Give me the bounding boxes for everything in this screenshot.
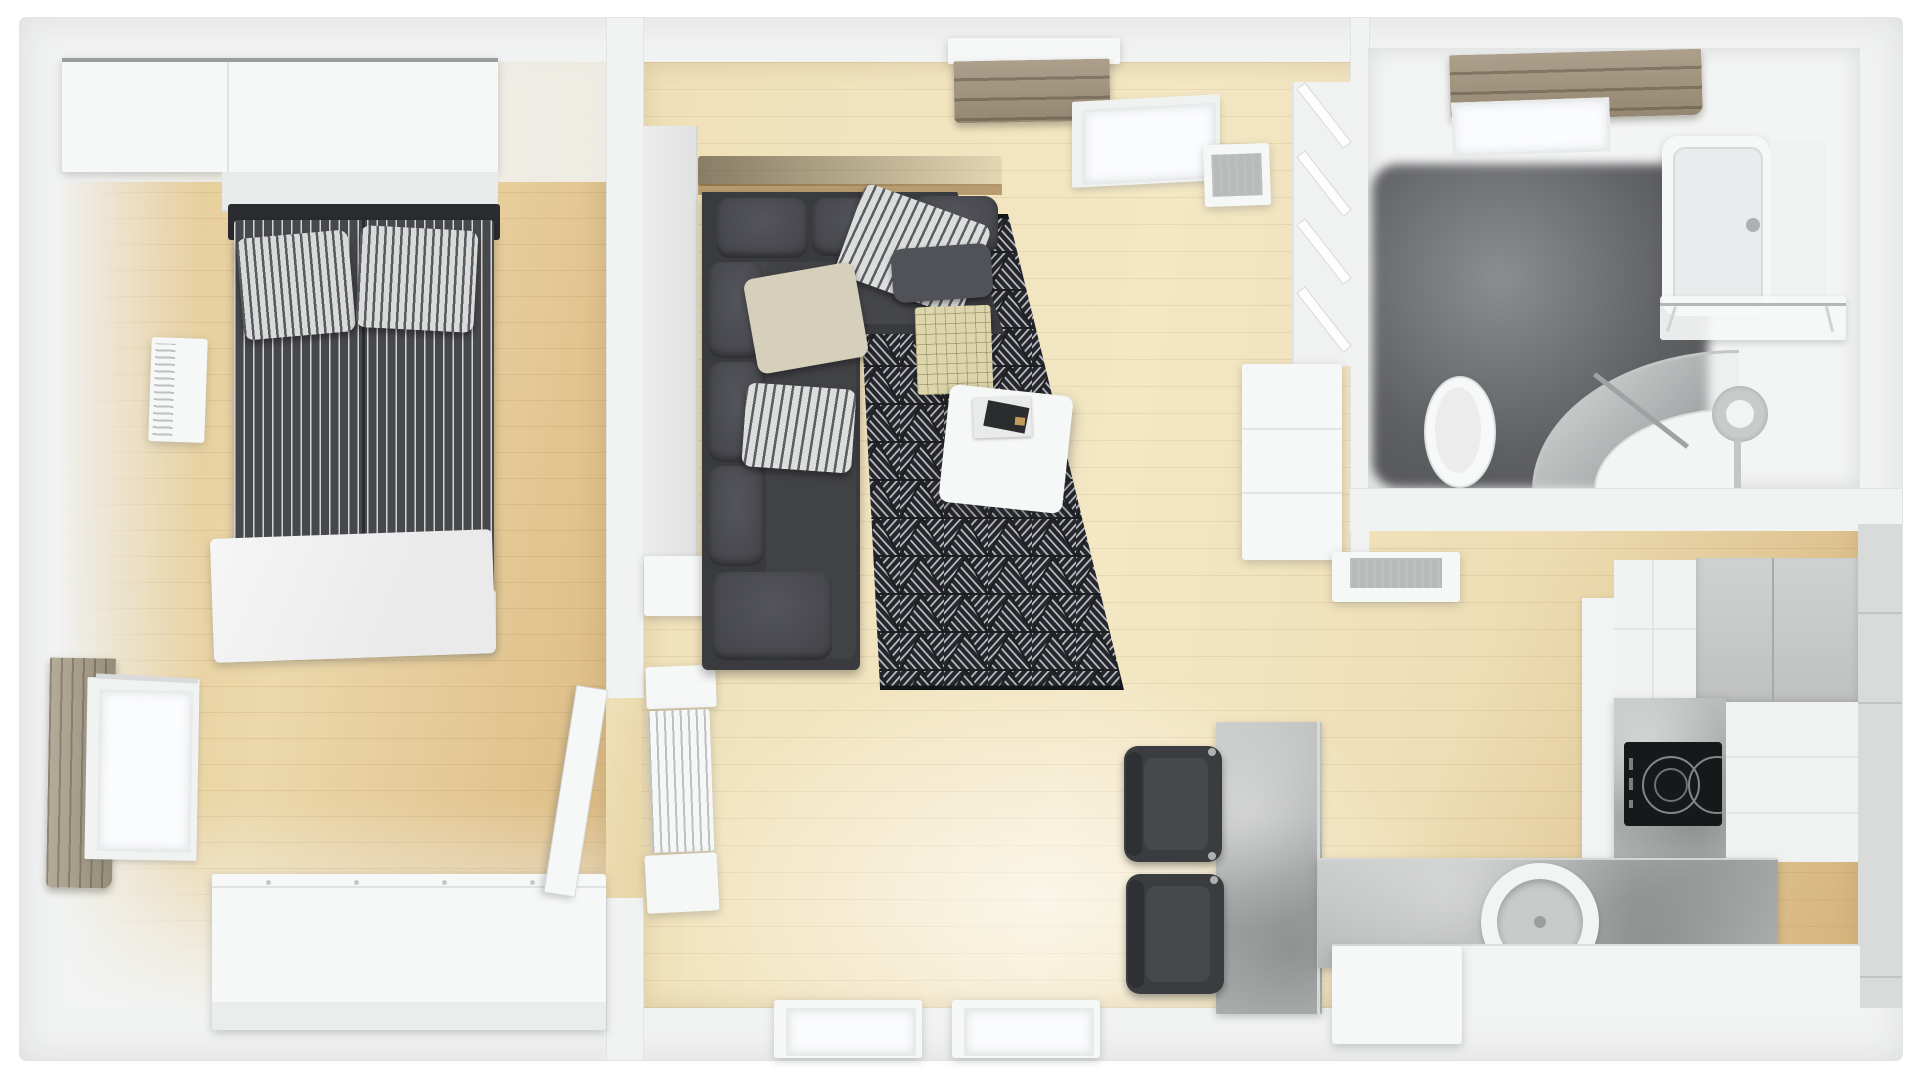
- shelf-slat: [1296, 82, 1351, 149]
- cooktop-controls: [1629, 778, 1633, 790]
- sofa-back-cushion: [716, 198, 808, 258]
- kitchen-white-run: [1582, 598, 1618, 862]
- wardrobe-top-gap: [62, 58, 498, 62]
- window-sill-radiator: [1203, 143, 1271, 207]
- cooktop-controls: [1629, 800, 1633, 808]
- cooktop-controls: [1629, 758, 1633, 770]
- wardrobe-seam: [227, 62, 229, 172]
- kitchen-white-tiles: [1614, 560, 1698, 700]
- bedroom-doorway-floor: [606, 698, 642, 898]
- bed-throw-blanket: [210, 529, 496, 663]
- tile-seam: [1652, 560, 1654, 700]
- sofa-pillow-dark: [890, 243, 994, 304]
- toilet-seat: [1435, 387, 1481, 473]
- bathroom-side-ledge: [1770, 142, 1826, 316]
- sideboard-seam: [1242, 428, 1342, 430]
- bathroom-skylight-window: [1451, 97, 1611, 156]
- toilet-paper-holder-icon: [1712, 386, 1768, 442]
- bedroom-wall-shelf-radiator: [148, 337, 208, 443]
- sink-drain-icon: [1534, 916, 1546, 928]
- tile-seam: [1614, 628, 1698, 630]
- partition-bedroom-living-upper: [606, 18, 644, 698]
- radiator-fins: [1211, 153, 1262, 197]
- bathtub: [1662, 136, 1770, 316]
- radiator-fins: [152, 343, 175, 436]
- bed-pillow-right: [355, 225, 478, 333]
- chair-backrest: [1126, 752, 1142, 856]
- wall-seam: [1858, 612, 1902, 614]
- sofa-plaid-throw: [914, 305, 993, 396]
- dining-chair: [1126, 874, 1224, 994]
- kitchen-counter-vertical: [1614, 698, 1726, 862]
- tall-gray-cabinets: [1696, 558, 1858, 704]
- towel-rail-bracket: [1666, 306, 1677, 332]
- towel-rail-bracket: [1825, 306, 1834, 332]
- radiator-shelf-bottom: [645, 852, 720, 914]
- shelf-slat: [1296, 286, 1351, 353]
- toilet: [1424, 376, 1496, 488]
- sideboard: [1242, 364, 1342, 560]
- radiator-pipe-icon: [1734, 440, 1741, 488]
- chair-seat: [1146, 886, 1210, 982]
- towel-shelf: [1660, 296, 1846, 340]
- tile-seam: [1726, 756, 1858, 758]
- chair-seat: [1144, 758, 1208, 850]
- chair-chrome-hinge: [1208, 852, 1216, 860]
- sofa-pillow-striped: [741, 382, 857, 473]
- floor-plan-stage: [0, 0, 1920, 1088]
- radiator-shelf-top: [645, 665, 716, 709]
- kitchen-right-wall: [1858, 524, 1902, 1008]
- dresser-handle-dot: [442, 880, 447, 885]
- wall-seam: [1858, 976, 1902, 978]
- living-slatted-radiator: [648, 709, 715, 853]
- paper-roll-icon: [1726, 400, 1754, 428]
- cooktop-burner: [1688, 756, 1722, 814]
- dresser-handle-dot: [530, 880, 535, 885]
- sofa-wall-shadow: [698, 156, 1002, 186]
- magazine-accent: [1015, 417, 1026, 426]
- bed-pillow-left: [236, 229, 356, 340]
- kitchen-bench: [1332, 946, 1462, 1044]
- dining-table: [1216, 722, 1322, 1014]
- bottom-window-glass: [786, 1008, 916, 1056]
- chair-backrest: [1128, 880, 1144, 988]
- bathroom-bottom-wall: [1350, 488, 1902, 531]
- shelf-slat: [1296, 150, 1351, 217]
- shelf-slat: [1296, 218, 1351, 285]
- towel-rail-icon: [1660, 303, 1846, 306]
- tile-seam: [1726, 812, 1858, 814]
- living-window-glass: [1082, 102, 1216, 185]
- dining-chair: [1124, 746, 1222, 862]
- sofa-pillow-beige: [743, 261, 870, 375]
- leaning-shelf-unit: [1292, 82, 1352, 366]
- cabinet-seam: [1772, 558, 1774, 704]
- sofa-chaise-end-cushion: [712, 572, 832, 660]
- bottom-window-glass: [964, 1008, 1094, 1056]
- wall-seam: [1858, 702, 1902, 704]
- living-left-tall-cabinet: [642, 126, 698, 560]
- coffee-table: [938, 384, 1074, 514]
- cooktop-burner-inner: [1654, 768, 1688, 802]
- induction-cooktop: [1624, 742, 1722, 826]
- partition-bedroom-living-lower: [606, 898, 644, 1060]
- sideboard-seam: [1242, 492, 1342, 494]
- bathtub-faucet-icon: [1746, 218, 1760, 232]
- dresser-handle-dot: [354, 880, 359, 885]
- bedroom-dresser: [212, 874, 606, 1030]
- kitchen-white-right: [1726, 702, 1858, 862]
- sofa-arm-cushion: [708, 466, 764, 566]
- low-cabinet-inset: [1350, 558, 1442, 588]
- low-cabinet: [1332, 552, 1460, 602]
- dresser-front-face: [212, 1002, 606, 1030]
- chair-chrome-hinge: [1208, 748, 1216, 756]
- partition-living-bathroom: [1350, 18, 1370, 558]
- bedroom-window-glass: [97, 689, 194, 853]
- bathroom-interior: [1368, 48, 1860, 488]
- dresser-handle-dot: [266, 880, 271, 885]
- wardrobe: [62, 58, 498, 172]
- chair-chrome-hinge: [1210, 876, 1218, 884]
